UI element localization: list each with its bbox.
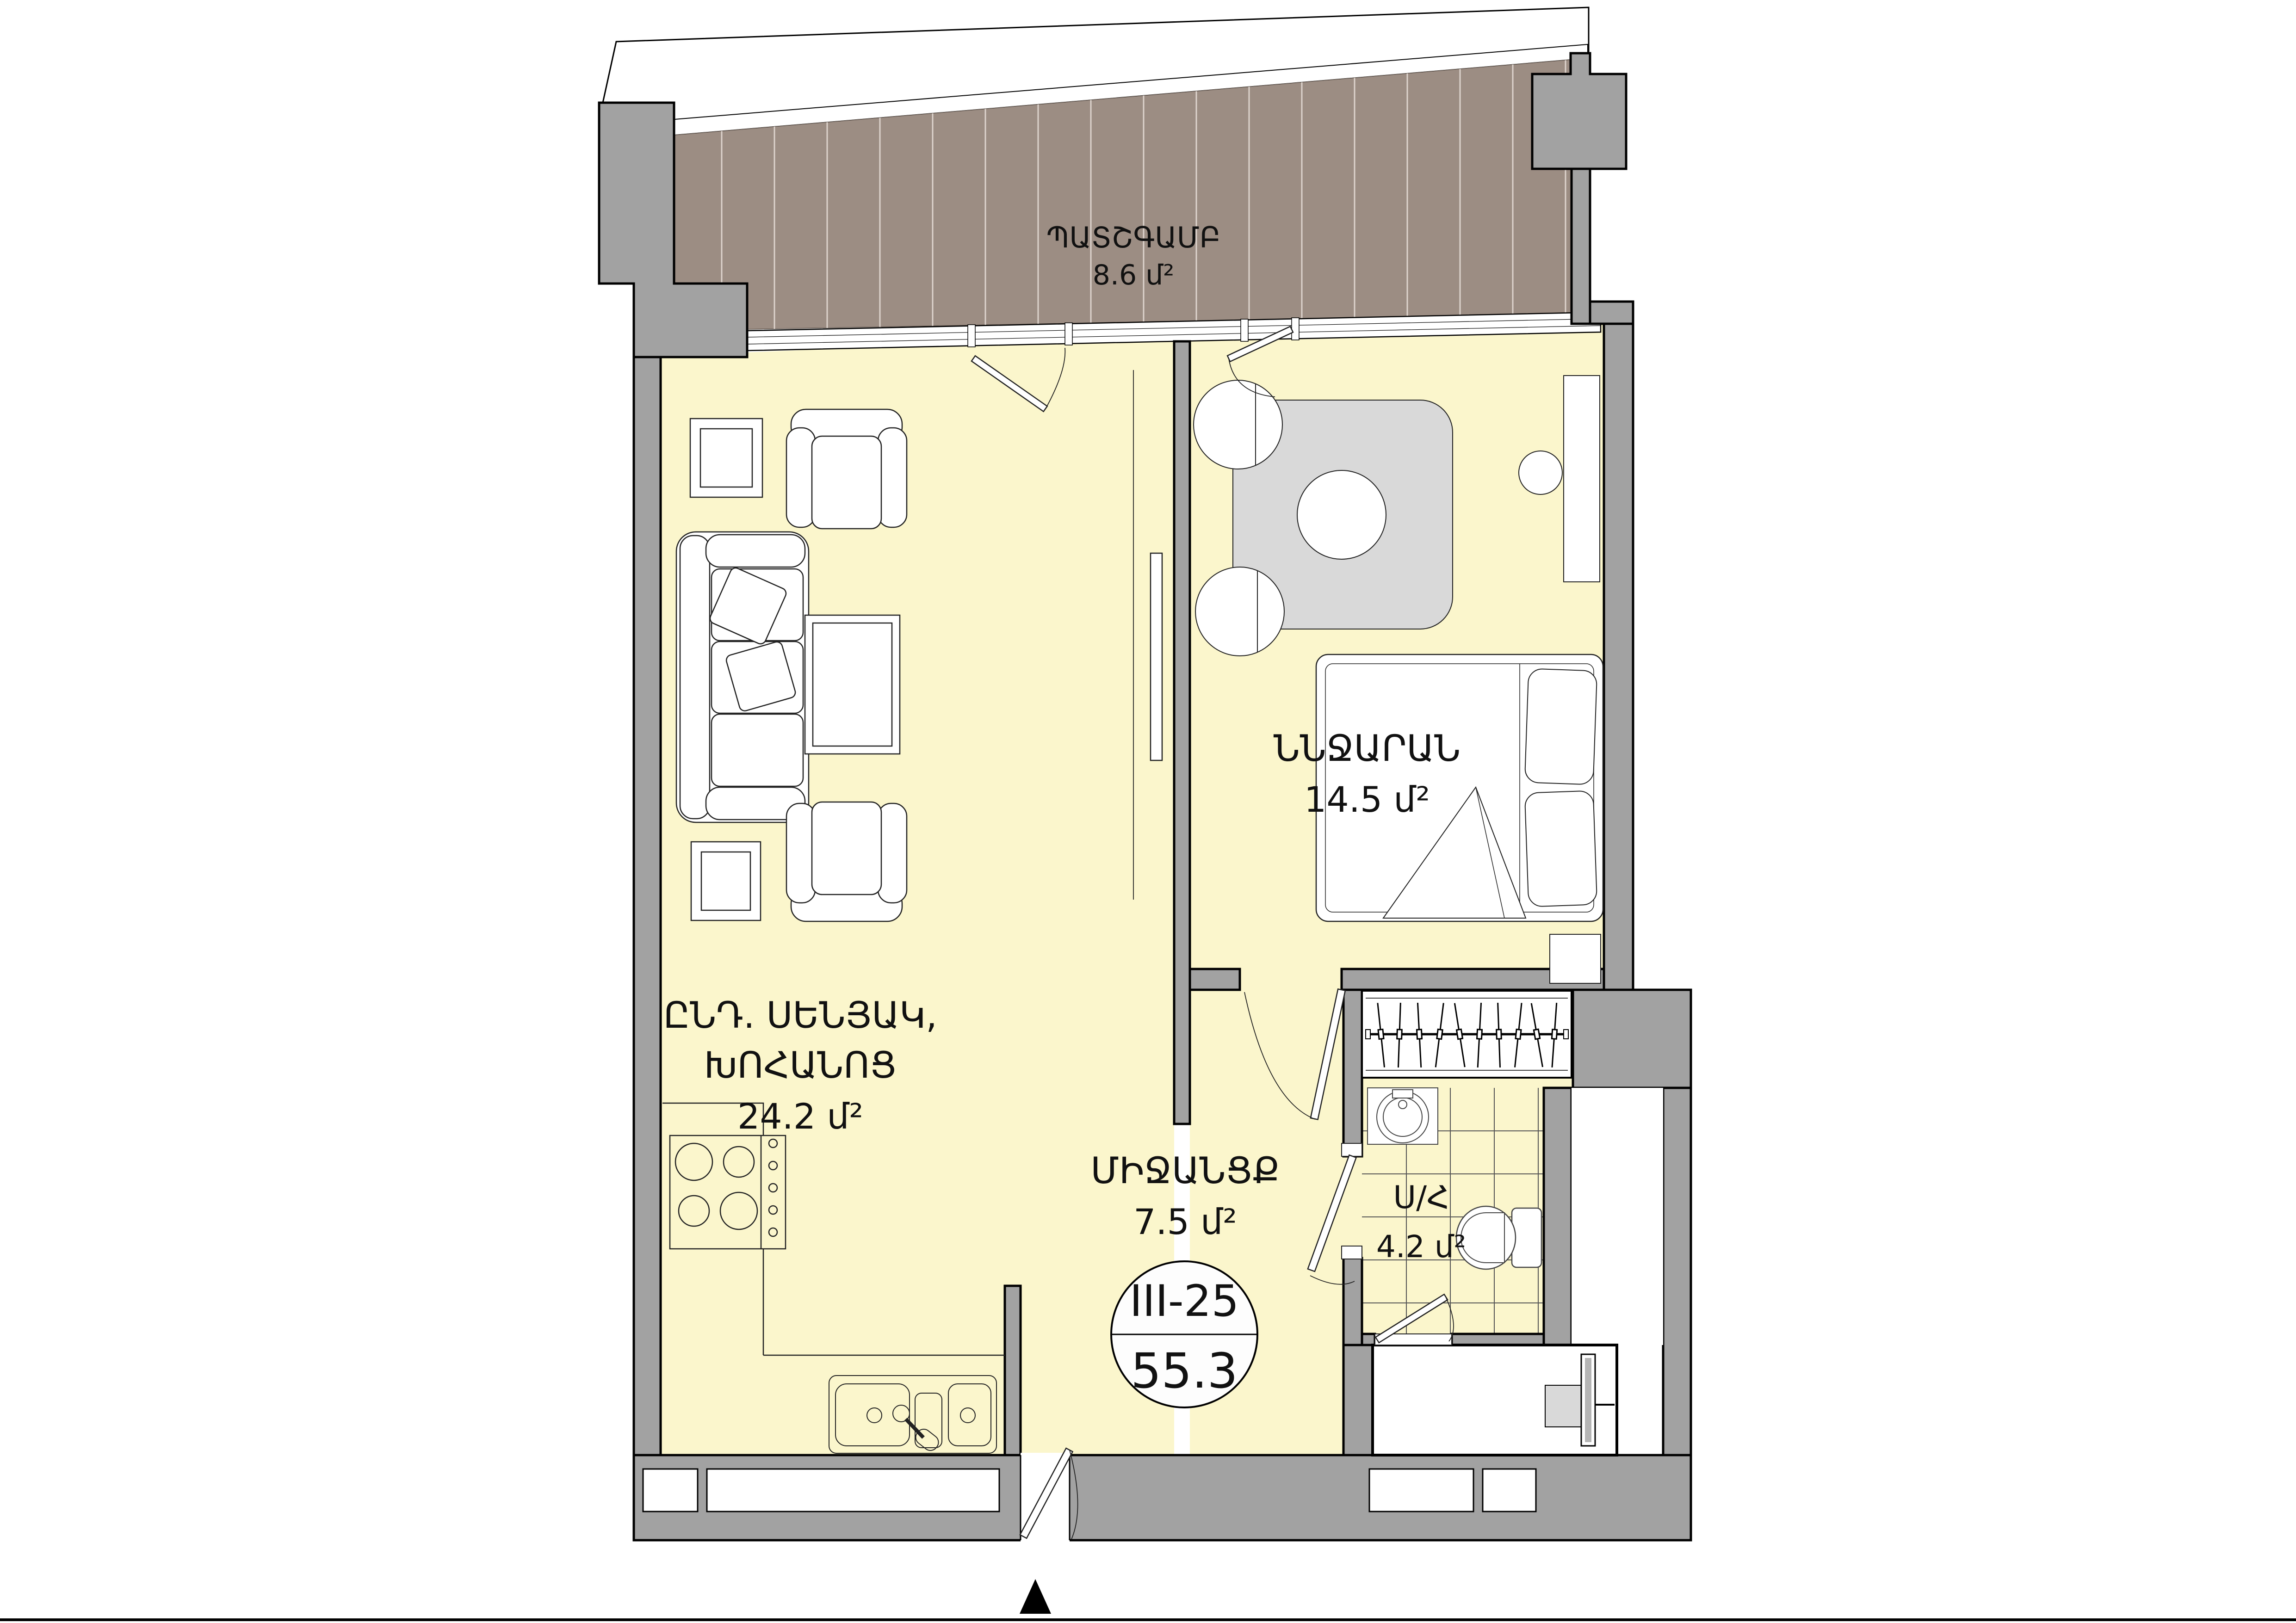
stool (1519, 451, 1562, 494)
wall-bedroom-bottom-left (1190, 969, 1240, 990)
living-label-1: ԸՆԴ. ՍԵՆՅԱԿ, (663, 995, 937, 1037)
sofa (676, 532, 809, 822)
wall-outer-right-lower (1663, 1088, 1691, 1455)
chair-bottom (1195, 567, 1284, 656)
bathroom-area: 4.2 մ² (1376, 1229, 1466, 1265)
pillow (1525, 790, 1597, 907)
side-table-top (690, 419, 762, 497)
window-jamb (968, 325, 975, 347)
wall-entry-stub (1005, 1286, 1021, 1455)
wall-bath-left-lower (1343, 1258, 1362, 1345)
armchair-bottom (786, 802, 907, 921)
shaft (1572, 1088, 1663, 1345)
coffee-table (805, 615, 900, 754)
balcony-label: ՊԱՏՇԳԱՄԲ (1046, 221, 1220, 254)
wall-balcony-right (1572, 169, 1590, 324)
side-table-bottom (691, 842, 761, 920)
corridor-area: 7.5 մ² (1133, 1201, 1237, 1242)
living-label-2: ԽՈՀԱՆՈՑ (704, 1045, 897, 1086)
window-bottom-1 (643, 1469, 698, 1512)
entry-arrow-icon (1020, 1579, 1051, 1614)
white-room (1373, 1345, 1617, 1455)
armchair-top (786, 409, 907, 529)
unit-badge: III-25 55.3 (1111, 1261, 1257, 1407)
toilet (1456, 1206, 1541, 1269)
window-bottom-4 (1483, 1469, 1536, 1512)
wall-bath-right (1544, 1088, 1572, 1345)
pillow (1525, 668, 1597, 784)
round-table (1297, 470, 1386, 559)
wall-bedroom-right (1604, 324, 1633, 990)
wall-mid (1174, 341, 1190, 1124)
window-jamb (1241, 319, 1248, 341)
corridor-label: ՄԻՋԱՆՑՔ (1090, 1150, 1280, 1192)
floor-plan: ՊԱՏՇԳԱՄԲ 8.6 մ² (0, 0, 2296, 1623)
wall-bath-left-upper (1343, 990, 1362, 1156)
bedroom-area: 14.5 մ² (1304, 779, 1430, 820)
dressing-table (1564, 376, 1600, 582)
wall-bath-bottom-a (1362, 1334, 1375, 1345)
window-bottom-2 (707, 1469, 999, 1512)
balcony-area: 8.6 մ² (1093, 259, 1175, 291)
wall-left (634, 357, 661, 1455)
window-bottom-3 (1369, 1469, 1473, 1512)
wall-bath-left-lowest (1343, 1345, 1373, 1455)
wardrobe (1362, 991, 1572, 1078)
balcony: ՊԱՏՇԳԱՄԲ 8.6 մ² (675, 14, 1588, 352)
nightstand (1550, 934, 1601, 983)
living-area: 24.2 մ² (737, 1096, 863, 1137)
bedroom-label: ՆՆՋԱՐԱՆ (1274, 728, 1461, 770)
bath-sink (1368, 1088, 1438, 1144)
window-jamb (1065, 323, 1072, 345)
chair-top (1194, 380, 1282, 469)
tv-unit (1151, 553, 1162, 760)
pillar-mid-right (1573, 990, 1691, 1088)
stove (670, 1135, 786, 1249)
window-jamb (1292, 318, 1299, 340)
door-gap-floor (1240, 969, 1342, 990)
bathroom-label: Ս/Հ (1393, 1179, 1449, 1216)
unit-number: III-25 (1130, 1276, 1239, 1327)
unit-total-area: 55.3 (1131, 1343, 1238, 1399)
wall-corner-connector (1590, 302, 1633, 324)
floor-plan-drawing: ՊԱՏՇԳԱՄԲ 8.6 մ² (0, 0, 2296, 1623)
bottom-frame-line (0, 1618, 2296, 1621)
